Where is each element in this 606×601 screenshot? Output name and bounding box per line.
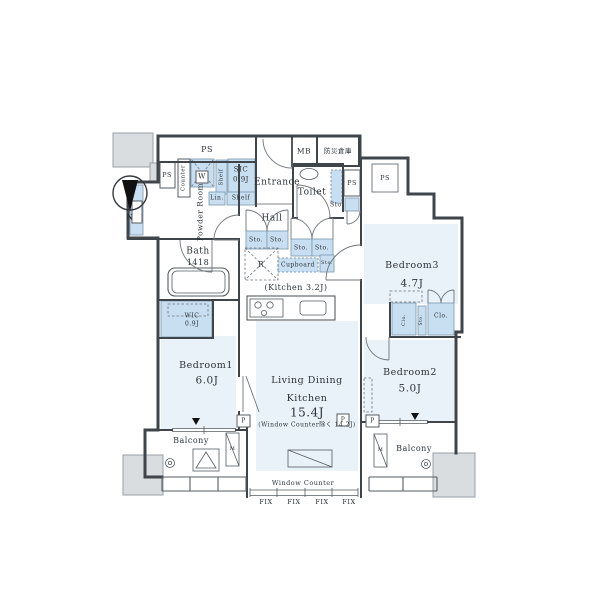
burner-icon bbox=[267, 302, 273, 308]
counter-label: Counter bbox=[181, 165, 188, 191]
bedroom3-size-label: 4.7J bbox=[401, 277, 424, 290]
concrete-block-bottom-right bbox=[433, 453, 475, 497]
closet-2-label: Clo. bbox=[434, 312, 448, 320]
ldk-size-label: 15.4J bbox=[290, 406, 324, 421]
bedroom2-size-label: 5.0J bbox=[399, 382, 422, 395]
pillar-label: P bbox=[341, 416, 346, 424]
pole-left-label: M bbox=[230, 446, 236, 452]
balcony-left-label: Balcony bbox=[173, 436, 209, 446]
sic-label: SIC bbox=[234, 166, 248, 175]
floor-plan-drawing bbox=[0, 0, 606, 601]
bath-label: Bath bbox=[186, 246, 209, 257]
pillar-label: P bbox=[370, 417, 375, 425]
faucet-icon bbox=[422, 460, 431, 469]
cupboard-label: Cupboard bbox=[281, 261, 315, 269]
concrete-block-top-left bbox=[113, 133, 153, 167]
fix-label: FIX bbox=[342, 498, 355, 506]
powder-room-label: Powder Room bbox=[195, 183, 204, 241]
ldk-label-1: Living Dining bbox=[271, 375, 342, 387]
washer-label: W bbox=[198, 173, 206, 182]
wic-label: WIC bbox=[185, 312, 200, 320]
kitchen-counter bbox=[247, 296, 335, 320]
bedroom2-label: Bedroom2 bbox=[383, 367, 437, 379]
burner-icon bbox=[261, 310, 266, 315]
balcony-left-railing bbox=[162, 477, 246, 491]
bedroom2-floor bbox=[364, 340, 454, 421]
pillar-label: P bbox=[241, 417, 246, 425]
fix-windows bbox=[250, 488, 358, 497]
bedroom1-size-label: 6.0J bbox=[196, 374, 219, 387]
sto-label: Sto. bbox=[315, 244, 329, 252]
bousai-label: 防災倉庫 bbox=[324, 147, 352, 155]
concrete-block-bottom-left bbox=[123, 455, 163, 495]
sto-label: Sto. bbox=[294, 244, 308, 252]
floor-plan: PS MB 防災倉庫 Entrance Toilet Hall Powder R… bbox=[0, 0, 606, 601]
closet-mid-label: Sto. bbox=[419, 315, 425, 326]
ps-2-label: PS bbox=[380, 174, 390, 182]
sto-small-label: Sto. bbox=[330, 201, 344, 209]
burner-icon bbox=[255, 302, 261, 308]
bathtub-inner bbox=[172, 271, 225, 293]
sto-label: Sto. bbox=[270, 236, 284, 244]
hall-storage-doors-2 bbox=[291, 218, 333, 239]
bedroom1-label: Bedroom1 bbox=[179, 360, 233, 372]
entrance-label: Entrance bbox=[254, 177, 300, 188]
mb-label: MB bbox=[297, 146, 311, 155]
sto-label: Sto. bbox=[249, 236, 263, 244]
kitchen-label: (Kitchen 3.2J) bbox=[265, 283, 328, 293]
entrance-door bbox=[263, 139, 292, 168]
bedroom3-label: Bedroom3 bbox=[385, 260, 439, 272]
ps-1-label: PS bbox=[347, 179, 357, 187]
fix-label: FIX bbox=[287, 498, 300, 506]
pole-right-label: M bbox=[378, 447, 384, 453]
ps-top-label: PS bbox=[201, 145, 213, 155]
window-counter-label: Window Counter bbox=[272, 479, 334, 487]
toilet-cabinet bbox=[331, 170, 342, 203]
shelf-label-horizontal: Shelf bbox=[232, 194, 250, 202]
powder-room-door bbox=[214, 215, 239, 240]
kitchen-sto-label: Sto. bbox=[321, 260, 333, 266]
bathtub bbox=[168, 268, 229, 296]
ldk-label-2: Kitchen bbox=[287, 393, 328, 405]
toilet-bowl-icon bbox=[300, 169, 318, 180]
compass-north-label: N bbox=[127, 214, 134, 223]
bath-size-label: 1418 bbox=[187, 258, 209, 268]
sto-small-box bbox=[345, 198, 359, 211]
sic-size-label: 0.9J bbox=[233, 176, 249, 185]
sto-door bbox=[347, 211, 360, 224]
fix-label: FIX bbox=[259, 498, 272, 506]
ps-left-label: PS bbox=[162, 171, 172, 179]
balcony-right-railing bbox=[369, 477, 437, 491]
closet-1-label: Clo. bbox=[401, 314, 407, 326]
hatch-triangle-icon bbox=[196, 452, 216, 468]
hall-label: Hall bbox=[262, 213, 283, 224]
fix-label: FIX bbox=[315, 498, 328, 506]
faucet-icon bbox=[166, 459, 175, 468]
balcony-right-label: Balcony bbox=[396, 444, 432, 454]
wic-size-label: 0.9J bbox=[185, 320, 199, 328]
toilet-label: Toilet bbox=[298, 187, 326, 198]
linen-label: Lin. bbox=[210, 194, 224, 202]
sink bbox=[300, 301, 326, 315]
fridge-label: R bbox=[258, 260, 265, 270]
shelf-label-vertical: Shelf bbox=[218, 169, 225, 186]
